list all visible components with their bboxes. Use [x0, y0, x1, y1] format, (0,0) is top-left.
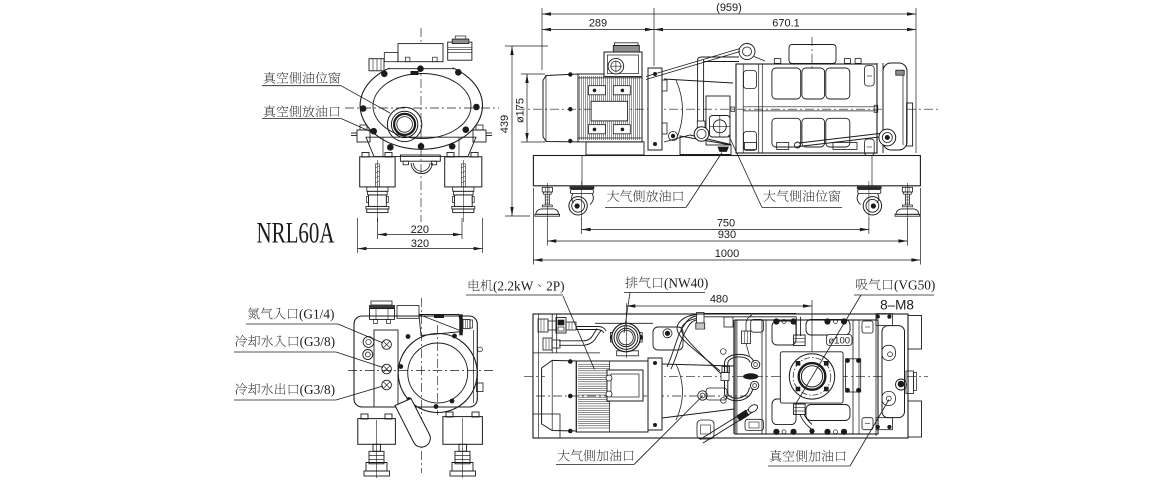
svg-text:(NW40): (NW40)	[664, 275, 708, 290]
svg-text:439: 439	[499, 115, 511, 133]
svg-text:2P): 2P)	[546, 278, 564, 293]
svg-text:930: 930	[718, 229, 736, 241]
svg-text:480: 480	[710, 294, 728, 306]
svg-text:(2.2kW: (2.2kW	[493, 278, 534, 293]
svg-text:220: 220	[411, 224, 429, 236]
svg-text:670.1: 670.1	[772, 18, 800, 30]
svg-text:289: 289	[589, 18, 607, 30]
svg-text:ø175: ø175	[515, 98, 527, 123]
svg-text:(959): (959)	[716, 2, 742, 14]
svg-text:(G1/4): (G1/4)	[299, 306, 334, 321]
svg-text:(G3/8): (G3/8)	[300, 382, 335, 397]
svg-text:1000: 1000	[715, 248, 739, 260]
svg-text:8–M8: 8–M8	[880, 298, 914, 313]
svg-text:750: 750	[717, 218, 735, 230]
svg-text:(G3/8): (G3/8)	[300, 334, 335, 349]
svg-text:320: 320	[411, 238, 429, 250]
svg-text:NRL60A: NRL60A	[257, 217, 335, 250]
svg-text:(VG50): (VG50)	[894, 277, 935, 292]
